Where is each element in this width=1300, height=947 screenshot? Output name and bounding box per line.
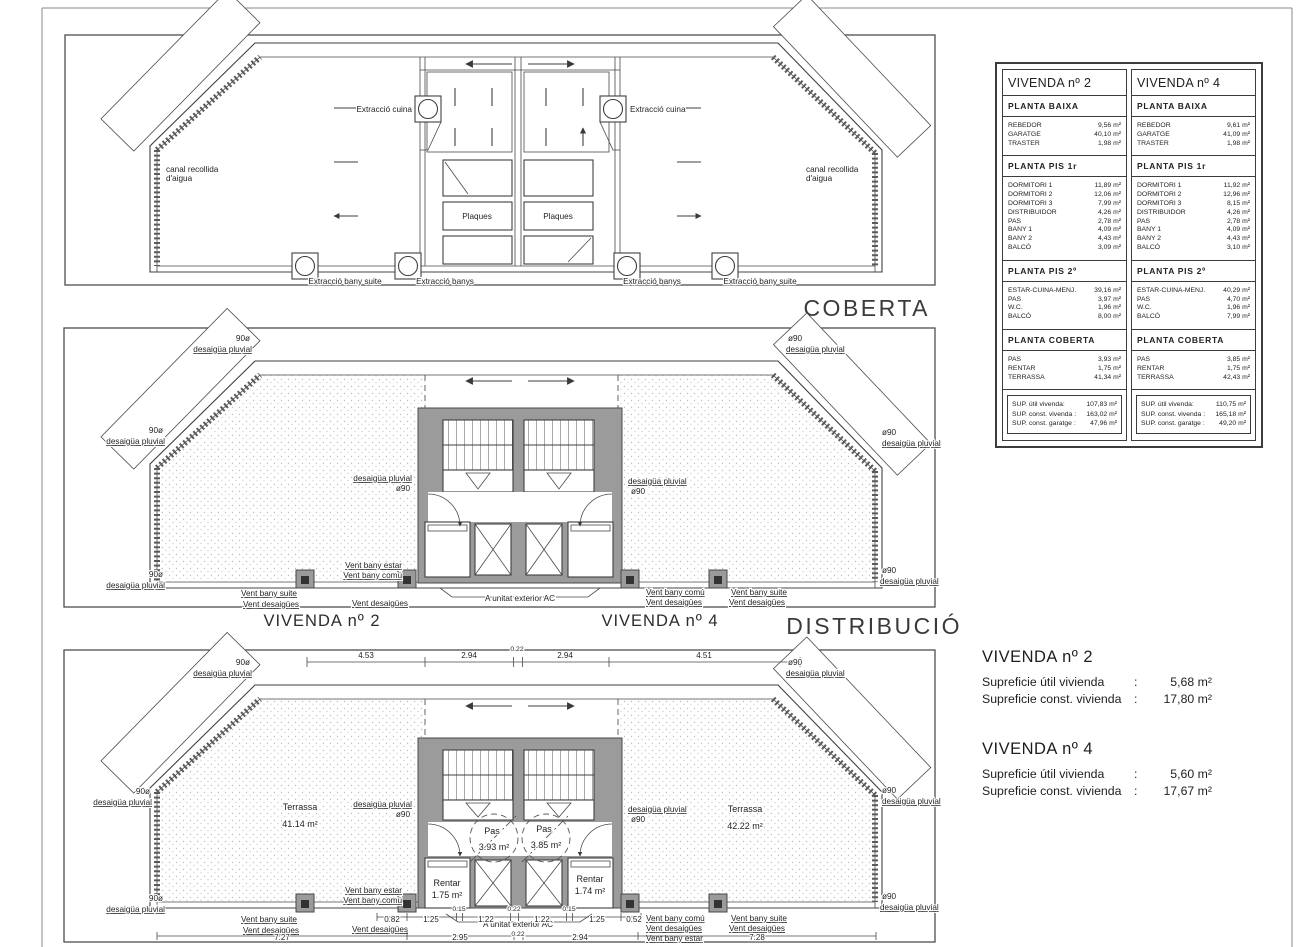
area-row-name: BANY 2 — [1137, 235, 1161, 244]
subtitle-vivenda-4: VIVENDA nº 4 — [601, 612, 718, 630]
area-row-value: 4,70 m² — [1227, 296, 1250, 305]
area-row-value: 41,09 m² — [1223, 131, 1250, 140]
area-row-name: TRASTER — [1008, 140, 1040, 149]
area-row-value: 12,96 m² — [1223, 191, 1250, 200]
summary-separator: : — [1134, 691, 1150, 708]
area-row: PAS2,78 m² — [1137, 218, 1250, 227]
label-extraccio-banys-right: Extracció banys — [623, 277, 681, 286]
summary-row-name: SUP. const. vivenda : — [1141, 410, 1205, 419]
label-vent-bany-comu: Vent bany comú — [343, 571, 402, 580]
dim-0-15: 0.15 — [562, 906, 575, 913]
label-vent-desaigues: Vent desaigües — [646, 924, 702, 933]
vivenda-column: VIVENDA nº 4PLANTA BAIXAREBEDOR9,61 m²GA… — [1131, 69, 1256, 441]
summary-value: 5,60 m² — [1150, 766, 1212, 783]
roof-slope-arrows — [334, 108, 701, 216]
summary-row-value: 49,20 m² — [1219, 419, 1246, 428]
plan-coberta: Extracció cuina Extracció cuina Plaques … — [65, 0, 935, 321]
label-desaigua-core-left: desaigüa pluvial — [353, 800, 412, 809]
area-row-name: BALCÓ — [1137, 313, 1160, 322]
area-row: BALCÓ7,99 m² — [1137, 313, 1250, 322]
summary-row: SUP. const. garatge :47,96 m² — [1012, 419, 1117, 428]
area-row-name: PAS — [1008, 356, 1021, 365]
area-row-name: PAS — [1137, 296, 1150, 305]
area-row: BANY 14,09 m² — [1008, 226, 1121, 235]
area-row: TRASTER1,98 m² — [1008, 140, 1121, 149]
dim-0-22: 0.22 — [510, 646, 523, 653]
planta-section-rows: DORMITORI 111,89 m²DORMITORI 212,06 m²DO… — [1003, 177, 1126, 260]
label-vent-bany-comu: Vent bany comú — [646, 588, 705, 597]
area-row-value: 8,00 m² — [1098, 313, 1121, 322]
label-desaigua-core-right: desaigüa pluvial — [628, 805, 687, 814]
area-row-value: 1,98 m² — [1227, 140, 1250, 149]
planta-section-rows: REBEDOR9,61 m²GARATGE41,09 m²TRASTER1,98… — [1132, 117, 1255, 156]
subtitle-vivenda-2: VIVENDA nº 2 — [263, 612, 380, 630]
area-row: W.C.1,96 m² — [1137, 304, 1250, 313]
label-90-ml: 90ø — [136, 787, 150, 796]
room-rentar-right-area: 1.74 m² — [575, 886, 606, 896]
water-channel-hatch — [157, 57, 875, 266]
label-canal-left-1: canal recollida — [166, 165, 219, 174]
label-90-tl: 90ø — [236, 658, 250, 667]
area-row-value: 11,89 m² — [1095, 182, 1121, 191]
vivenda-column: VIVENDA nº 2PLANTA BAIXAREBEDOR9,56 m²GA… — [1002, 69, 1127, 441]
area-row-name: DORMITORI 1 — [1137, 182, 1181, 191]
label-vent-desaigues: Vent desaigües — [352, 925, 408, 934]
summary-separator: : — [1134, 783, 1150, 800]
area-row-name: DISTRIBUIDOR — [1137, 209, 1186, 218]
area-row-value: 1,98 m² — [1098, 140, 1121, 149]
area-row: PAS4,70 m² — [1137, 296, 1250, 305]
area-row: DISTRIBUIDOR4,26 m² — [1137, 209, 1250, 218]
area-row-value: 7,99 m² — [1098, 200, 1121, 209]
label-90-tl: 90ø — [236, 334, 250, 343]
area-row-value: 11,92 m² — [1224, 182, 1250, 191]
summary-row: Supreficie útil vivienda : 5,60 m² — [982, 766, 1227, 783]
planta-section-rows: ESTAR-CUINA-MENJ.39,16 m²PAS3,97 m²W.C.1… — [1003, 282, 1126, 330]
label-vent-bany-suite: Vent bany suite — [731, 588, 787, 597]
area-row-value: 39,16 m² — [1094, 287, 1121, 296]
area-row: PAS3,93 m² — [1008, 356, 1121, 365]
dim-1-25: 1.25 — [589, 915, 605, 924]
area-row: BALCÓ3,09 m² — [1008, 244, 1121, 253]
area-row-name: DORMITORI 1 — [1008, 182, 1052, 191]
area-row-name: BANY 1 — [1137, 226, 1161, 235]
label-vent-bany-estar: Vent bany estar — [646, 934, 703, 943]
area-row-value: 1,96 m² — [1098, 304, 1121, 313]
area-row-value: 3,85 m² — [1227, 356, 1250, 365]
summary-row-name: SUP. const. vivenda : — [1012, 410, 1076, 419]
label-vent-bany-comu: Vent bany comú — [646, 914, 705, 923]
dim-1-25: 1.25 — [423, 915, 439, 924]
dimension-chain-top: 4.53 2.94 0.22 2.94 4.51 — [307, 646, 800, 667]
label-desaigua-ml: desaigüa pluvial — [106, 437, 165, 446]
summary-value: 5,68 m² — [1150, 674, 1212, 691]
label-vent-desaigues: Vent desaigües — [243, 926, 299, 935]
dim-7-28: 7.28 — [749, 933, 765, 942]
stair-core — [418, 408, 622, 583]
dim-1-22: 1.22 — [478, 915, 494, 924]
label-vent-desaigues: Vent desaigües — [729, 924, 785, 933]
area-row-value: 9,56 m² — [1098, 122, 1121, 131]
planta-section-header: PLANTA PIS 2º — [1132, 261, 1255, 282]
dim-0-82: 0.82 — [384, 915, 400, 924]
area-row-name: W.C. — [1008, 304, 1023, 313]
summary-title: VIVENDA nº 4 — [982, 740, 1227, 759]
label-90-core-left: ø90 — [396, 810, 411, 819]
summary-title: VIVENDA nº 2 — [982, 648, 1227, 667]
label-desaigua-br: desaigüa pluvial — [880, 903, 939, 912]
summary-row: SUP. útil vivenda:110,75 m² — [1141, 400, 1246, 409]
label-desaigua-bl: desaigüa pluvial — [106, 905, 165, 914]
area-row-name: DORMITORI 3 — [1008, 200, 1052, 209]
area-row: TERRASSA41,34 m² — [1008, 374, 1121, 383]
label-plaques-right: Plaques — [543, 212, 573, 221]
label-90-bl: 90ø — [149, 570, 163, 579]
label-desaigua-tl: desaigüa pluvial — [193, 345, 252, 354]
area-row-name: DISTRIBUIDOR — [1008, 209, 1057, 218]
area-row-value: 40,10 m² — [1094, 131, 1121, 140]
area-row: DORMITORI 212,96 m² — [1137, 191, 1250, 200]
label-canal-right-2: d'aigua — [806, 174, 833, 183]
summary-row-value: 107,83 m² — [1086, 400, 1117, 409]
vivenda-column-title: VIVENDA nº 4 — [1132, 70, 1255, 96]
dim-2-94: 2.94 — [572, 933, 588, 942]
area-row-value: 4,43 m² — [1098, 235, 1121, 244]
dim-0-22: 0.22 — [511, 931, 524, 938]
label-canal-left-2: d'aigua — [166, 174, 193, 183]
area-row-name: REBEDOR — [1137, 122, 1171, 131]
area-row-value: 3,09 m² — [1098, 244, 1121, 253]
area-row-name: PAS — [1008, 296, 1021, 305]
label-90-mr: ø90 — [882, 786, 897, 795]
area-row: GARATGE41,09 m² — [1137, 131, 1250, 140]
area-row: BANY 24,43 m² — [1008, 235, 1121, 244]
area-row-name: PAS — [1137, 218, 1150, 227]
area-row-value: 2,78 m² — [1098, 218, 1121, 227]
label-extraccio-bany-suite-left: Extracció bany suite — [308, 277, 382, 286]
area-row-value: 42,43 m² — [1223, 374, 1250, 383]
architectural-sheet: Extracció cuina Extracció cuina Plaques … — [0, 0, 1300, 947]
summary-row-value: 165,18 m² — [1215, 410, 1246, 419]
area-row-value: 40,29 m² — [1223, 287, 1250, 296]
area-row: BANY 14,09 m² — [1137, 226, 1250, 235]
planta-section-header: PLANTA COBERTA — [1003, 330, 1126, 351]
summary-row: SUP. const. garatge :49,20 m² — [1141, 419, 1246, 428]
summary-row-value: 163,02 m² — [1086, 410, 1117, 419]
area-row: BALCÓ3,10 m² — [1137, 244, 1250, 253]
room-pas-right-name: Pas — [536, 824, 552, 834]
area-row-value: 9,61 m² — [1227, 122, 1250, 131]
planta-section-header: PLANTA PIS 1r — [1132, 156, 1255, 177]
label-vent-bany-estar: Vent bany estar — [345, 561, 402, 570]
label-extraccio-cuina-right: Extracció cuina — [630, 105, 686, 114]
area-row-name: ESTAR-CUINA-MENJ. — [1008, 287, 1076, 296]
label-90-mr: ø90 — [882, 428, 897, 437]
area-row-value: 3,93 m² — [1098, 356, 1121, 365]
area-row-name: BALCÓ — [1008, 313, 1031, 322]
area-row-value: 1,75 m² — [1098, 365, 1121, 374]
summary-value: 17,67 m² — [1150, 783, 1212, 800]
label-vent-desaigues: Vent desaigües — [729, 598, 785, 607]
label-extraccio-cuina-left: Extracció cuina — [356, 105, 412, 114]
summary-row: Supreficie útil vivienda : 5,68 m² — [982, 674, 1227, 691]
summary-label: Supreficie útil vivienda — [982, 766, 1134, 783]
area-row-name: BALCÓ — [1008, 244, 1031, 253]
planta-section-rows: PAS3,85 m²RENTAR1,75 m²TERRASSA42,43 m² — [1132, 351, 1255, 390]
label-vent-bany-comu: Vent bany comú — [343, 896, 402, 905]
label-desaigua-core-right: desaigüa pluvial — [628, 477, 687, 486]
planta-section-rows: PAS3,93 m²RENTAR1,75 m²TERRASSA41,34 m² — [1003, 351, 1126, 390]
dim-7-27: 7.27 — [274, 933, 290, 942]
area-row: W.C.1,96 m² — [1008, 304, 1121, 313]
planta-section-header: PLANTA BAIXA — [1132, 96, 1255, 117]
area-row-value: 2,78 m² — [1227, 218, 1250, 227]
area-row-name: RENTAR — [1137, 365, 1164, 374]
area-row-name: PAS — [1137, 356, 1150, 365]
summary-row: SUP. const. vivenda :165,18 m² — [1141, 410, 1246, 419]
room-rentar-right-name: Rentar — [576, 874, 603, 884]
label-plaques-left: Plaques — [462, 212, 492, 221]
label-vent-desaigues: Vent desaigües — [646, 598, 702, 607]
label-extraccio-bany-suite-right: Extracció bany suite — [723, 277, 797, 286]
area-row-value: 4,26 m² — [1098, 209, 1121, 218]
area-row-value: 4,26 m² — [1227, 209, 1250, 218]
area-row: DORMITORI 212,06 m² — [1008, 191, 1121, 200]
area-row: ESTAR-CUINA-MENJ.39,16 m² — [1008, 287, 1121, 296]
summary-value: 17,80 m² — [1150, 691, 1212, 708]
area-row: PAS3,97 m² — [1008, 296, 1121, 305]
label-desaigua-bl: desaigüa pluvial — [106, 581, 165, 590]
vent-up-arrows — [455, 88, 583, 146]
summary-row-name: SUP. const. garatge : — [1012, 419, 1076, 428]
summary-separator: : — [1134, 674, 1150, 691]
dim-0-52: 0.52 — [626, 915, 642, 924]
area-row: RENTAR1,75 m² — [1008, 365, 1121, 374]
area-row-name: REBEDOR — [1008, 122, 1042, 131]
label-extraccio-banys-left: Extracció banys — [416, 277, 474, 286]
summary-row: Supreficie const. vivienda : 17,67 m² — [982, 783, 1227, 800]
dim-2-95: 2.95 — [452, 933, 468, 942]
summary-vivenda-4: VIVENDA nº 4 Supreficie útil vivienda : … — [982, 740, 1227, 799]
area-row: DORMITORI 111,89 m² — [1008, 182, 1121, 191]
label-90-core-left: ø90 — [396, 484, 411, 493]
area-row: DORMITORI 37,99 m² — [1008, 200, 1121, 209]
area-row: TRASTER1,98 m² — [1137, 140, 1250, 149]
room-terrassa-right-name: Terrassa — [728, 804, 763, 814]
label-vent-bany-suite: Vent bany suite — [241, 915, 297, 924]
plan-terrassa: 4.53 2.94 0.22 2.94 4.51 90ø desaigüa pl… — [64, 632, 941, 943]
label-desaigua-mr: desaigüa pluvial — [882, 797, 941, 806]
area-row-name: TERRASSA — [1008, 374, 1045, 383]
room-terrassa-right-area: 42.22 m² — [727, 821, 763, 831]
plan-distribucio: 90ø desaigüa pluvial 90ø desaigüa pluvia… — [64, 308, 962, 639]
area-row-name: GARATGE — [1137, 131, 1170, 140]
area-row-name: W.C. — [1137, 304, 1152, 313]
area-row-name: ESTAR-CUINA-MENJ. — [1137, 287, 1205, 296]
label-desaigua-br: desaigüa pluvial — [880, 577, 939, 586]
area-row-value: 4,09 m² — [1227, 226, 1250, 235]
label-90-br: ø90 — [882, 566, 897, 575]
summary-row: SUP. const. vivenda :163,02 m² — [1012, 410, 1117, 419]
area-row: DISTRIBUIDOR4,26 m² — [1008, 209, 1121, 218]
planta-section-header: PLANTA PIS 2º — [1003, 261, 1126, 282]
area-row-value: 41,34 m² — [1094, 374, 1121, 383]
area-row-value: 3,10 m² — [1227, 244, 1250, 253]
area-row-value: 3,97 m² — [1098, 296, 1121, 305]
label-90-ml: 90ø — [149, 426, 163, 435]
area-row-name: TERRASSA — [1137, 374, 1174, 383]
planta-section-rows: DORMITORI 111,92 m²DORMITORI 212,96 m²DO… — [1132, 177, 1255, 260]
area-row-name: TRASTER — [1137, 140, 1169, 149]
dim-4-51: 4.51 — [696, 651, 712, 660]
area-row-name: DORMITORI 2 — [1137, 191, 1181, 200]
label-90-tr: ø90 — [788, 334, 803, 343]
area-row: BALCÓ8,00 m² — [1008, 313, 1121, 322]
room-rentar-left-name: Rentar — [433, 878, 460, 888]
vivenda-summary-box: SUP. útil vivenda:110,75 m²SUP. const. v… — [1136, 395, 1251, 433]
vivenda-column-title: VIVENDA nº 2 — [1003, 70, 1126, 96]
area-row: GARATGE40,10 m² — [1008, 131, 1121, 140]
summary-vivenda-2: VIVENDA nº 2 Supreficie útil vivienda : … — [982, 648, 1227, 707]
summary-row: Supreficie const. vivienda : 17,80 m² — [982, 691, 1227, 708]
area-row-name: GARATGE — [1008, 131, 1041, 140]
dim-4-53: 4.53 — [358, 651, 374, 660]
planta-section-header: PLANTA PIS 1r — [1003, 156, 1126, 177]
area-row: RENTAR1,75 m² — [1137, 365, 1250, 374]
area-row: TERRASSA42,43 m² — [1137, 374, 1250, 383]
room-rentar-left-area: 1.75 m² — [432, 890, 463, 900]
area-row-name: BANY 2 — [1008, 235, 1032, 244]
summary-label: Supreficie const. vivienda — [982, 691, 1134, 708]
room-terrassa-left-area: 41.14 m² — [282, 819, 318, 829]
title-coberta: COBERTA — [803, 295, 930, 321]
dim-1-22: 1.22 — [534, 915, 550, 924]
label-90-core-right: ø90 — [631, 487, 646, 496]
area-row-name: PAS — [1008, 218, 1021, 227]
area-row-value: 1,96 m² — [1227, 304, 1250, 313]
area-row-value: 7,99 m² — [1227, 313, 1250, 322]
label-desaigua-tr: desaigüa pluvial — [786, 345, 845, 354]
label-desaigua-core-left: desaigüa pluvial — [353, 474, 412, 483]
planta-section-header: PLANTA COBERTA — [1132, 330, 1255, 351]
dim-2-94: 2.94 — [557, 651, 573, 660]
label-canal-right-1: canal recollida — [806, 165, 859, 174]
area-row-value: 1,75 m² — [1227, 365, 1250, 374]
label-desaigua-mr: desaigüa pluvial — [882, 439, 941, 448]
label-desaigua-tr: desaigüa pluvial — [786, 669, 845, 678]
label-desaigua-ml: desaigüa pluvial — [93, 798, 152, 807]
summary-row-name: SUP. útil vivenda: — [1012, 400, 1065, 409]
area-row: BANY 24,43 m² — [1137, 235, 1250, 244]
room-pas-right-area: 3.85 m² — [531, 840, 562, 850]
label-vent-desaigues: Vent desaigües — [352, 599, 408, 608]
area-row-name: RENTAR — [1008, 365, 1035, 374]
vivenda-summary-box: SUP. útil vivenda:107,83 m²SUP. const. v… — [1007, 395, 1122, 433]
room-pas-left-area: 3.93 m² — [479, 842, 510, 852]
area-row-name: BALCÓ — [1137, 244, 1160, 253]
label-90-bl: 90ø — [149, 894, 163, 903]
summary-row-value: 110,75 m² — [1216, 400, 1246, 409]
summary-row-name: SUP. const. garatge : — [1141, 419, 1205, 428]
title-distribucio: DISTRIBUCIÓ — [786, 613, 962, 639]
kitchen-extract-left — [415, 96, 441, 150]
area-row-value: 12,06 m² — [1094, 191, 1121, 200]
area-row: REBEDOR9,61 m² — [1137, 122, 1250, 131]
kitchen-extract-right — [600, 96, 626, 150]
area-row: REBEDOR9,56 m² — [1008, 122, 1121, 131]
label-vent-bany-suite: Vent bany suite — [731, 914, 787, 923]
area-row-name: DORMITORI 2 — [1008, 191, 1052, 200]
dim-0-15: 0.15 — [452, 906, 465, 913]
dim-2-94: 2.94 — [461, 651, 477, 660]
label-vent-desaigues: Vent desaigües — [243, 600, 299, 609]
label-90-core-right: ø90 — [631, 815, 646, 824]
summary-separator: : — [1134, 766, 1150, 783]
room-pas-left-name: Pas — [484, 826, 500, 836]
area-row: PAS2,78 m² — [1008, 218, 1121, 227]
area-row-value: 4,09 m² — [1098, 226, 1121, 235]
room-terrassa-left-name: Terrassa — [283, 802, 318, 812]
label-90-br: ø90 — [882, 892, 897, 901]
area-row-name: DORMITORI 3 — [1137, 200, 1181, 209]
area-row: DORMITORI 111,92 m² — [1137, 182, 1250, 191]
area-row: DORMITORI 38,15 m² — [1137, 200, 1250, 209]
planta-section-header: PLANTA BAIXA — [1003, 96, 1126, 117]
area-row-value: 4,43 m² — [1227, 235, 1250, 244]
planta-section-rows: REBEDOR9,56 m²GARATGE40,10 m²TRASTER1,98… — [1003, 117, 1126, 156]
summary-row-name: SUP. útil vivenda: — [1141, 400, 1194, 409]
dim-0-22: 0.22 — [507, 906, 520, 913]
summary-row-value: 47,96 m² — [1090, 419, 1117, 428]
summary-label: Supreficie útil vivienda — [982, 674, 1134, 691]
area-row-name: BANY 1 — [1008, 226, 1032, 235]
label-desaigua-tl: desaigüa pluvial — [193, 669, 252, 678]
planta-section-rows: ESTAR-CUINA-MENJ.40,29 m²PAS4,70 m²W.C.1… — [1132, 282, 1255, 330]
label-vent-bany-suite: Vent bany suite — [241, 589, 297, 598]
summary-label: Supreficie const. vivienda — [982, 783, 1134, 800]
area-row: PAS3,85 m² — [1137, 356, 1250, 365]
summary-row: SUP. útil vivenda:107,83 m² — [1012, 400, 1117, 409]
area-table: VIVENDA nº 2PLANTA BAIXAREBEDOR9,56 m²GA… — [995, 62, 1263, 448]
area-row-value: 8,15 m² — [1227, 200, 1250, 209]
label-a-unitat-ac: A unitat exterior AC — [485, 594, 555, 603]
label-90-tr: ø90 — [788, 658, 803, 667]
area-row: ESTAR-CUINA-MENJ.40,29 m² — [1137, 287, 1250, 296]
label-vent-bany-estar: Vent bany estar — [345, 886, 402, 895]
